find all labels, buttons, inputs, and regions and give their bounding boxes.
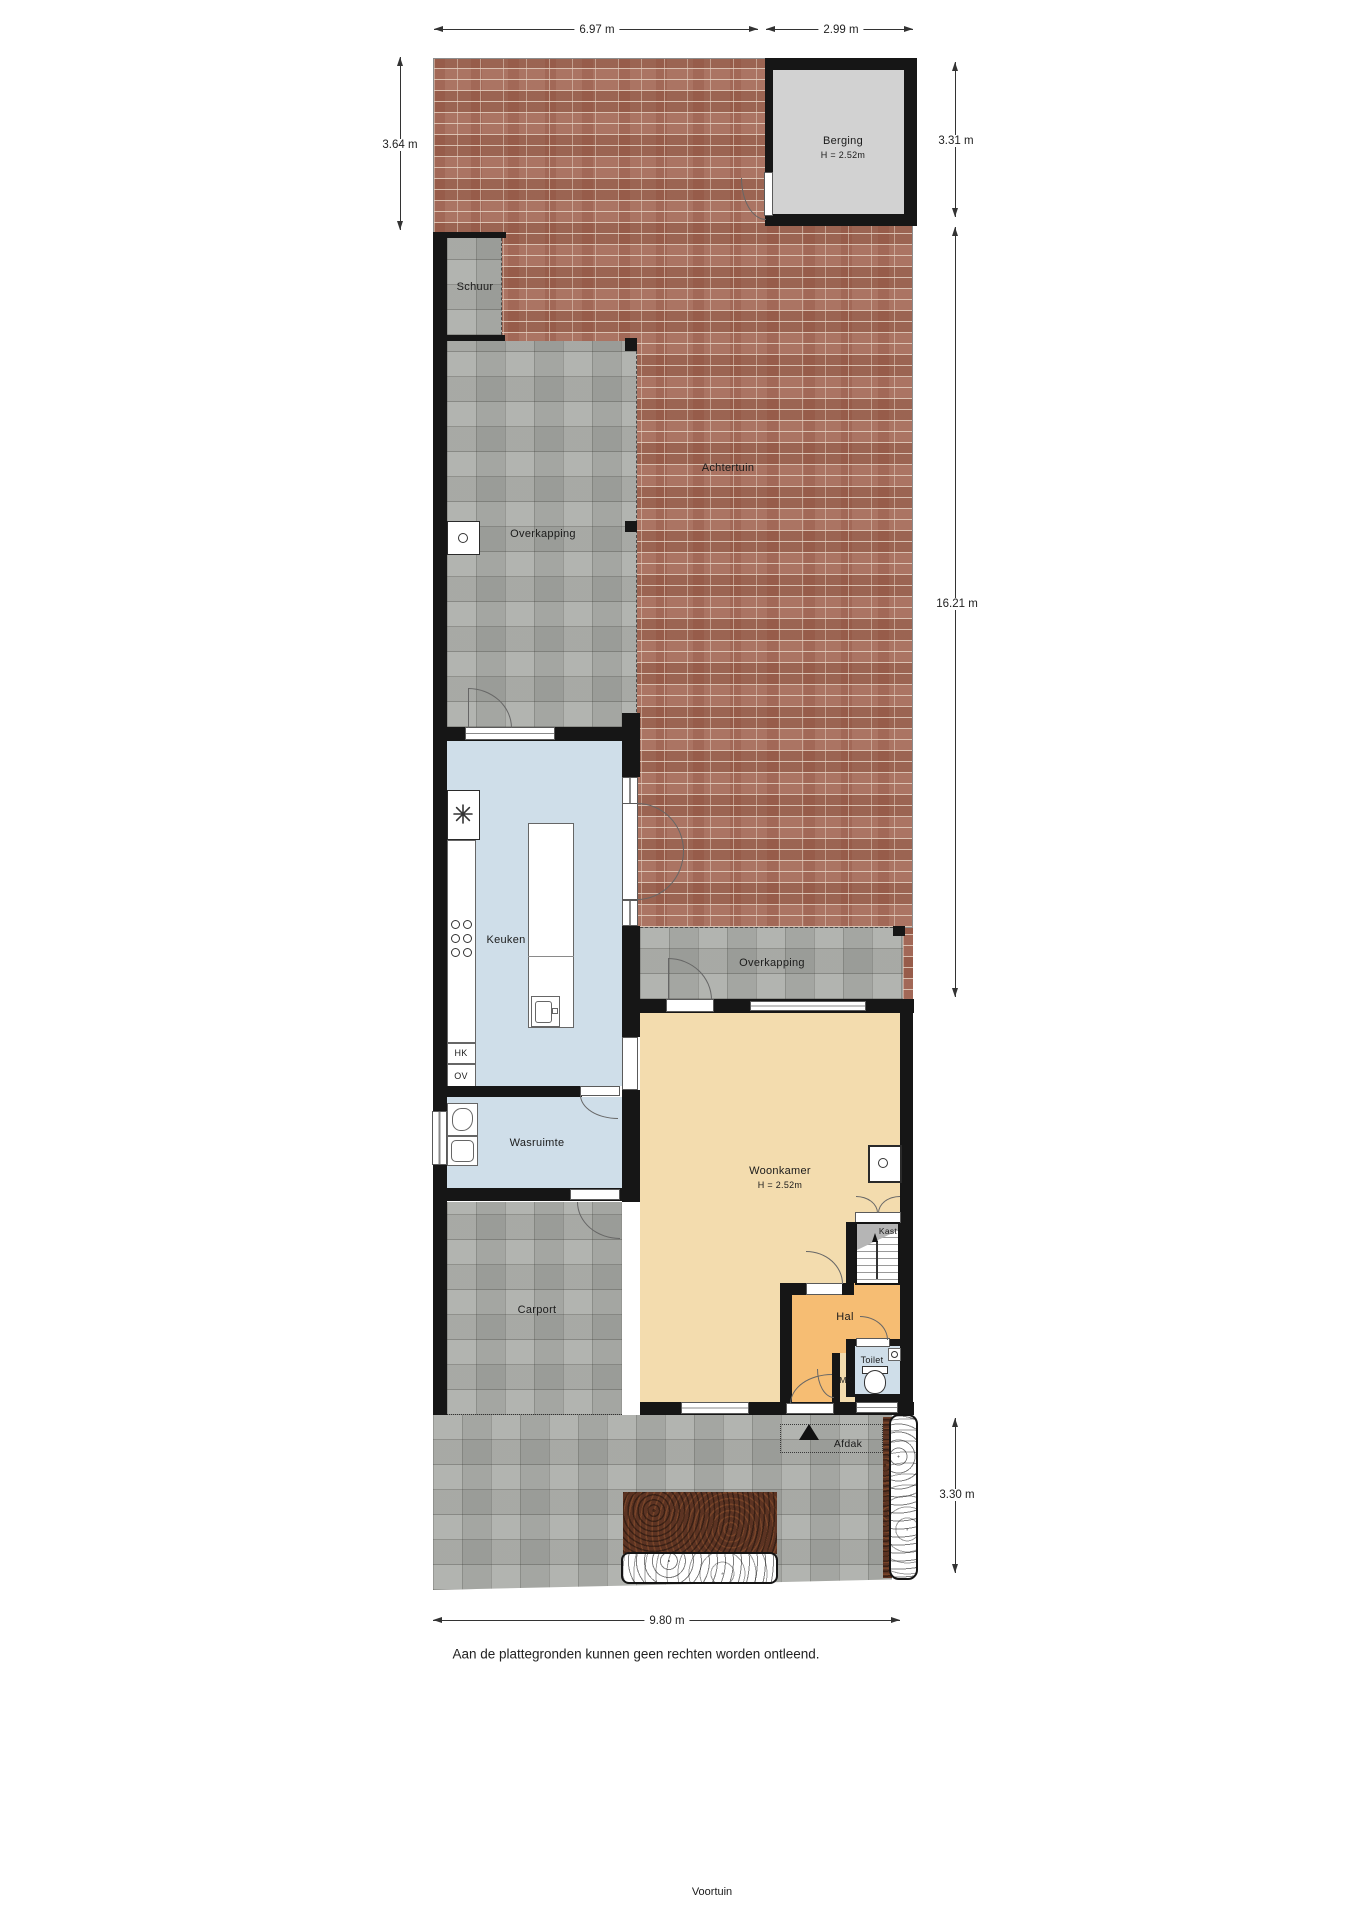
hob-burner xyxy=(451,948,460,957)
woonkamer-label: Woonkamer xyxy=(749,1165,811,1177)
dimension-arrow xyxy=(891,1617,900,1623)
carport-label: Carport xyxy=(518,1304,557,1316)
toilet-wall-left xyxy=(846,1339,855,1397)
hob-burner xyxy=(463,948,472,957)
woonkamer-tuindeur-leaf xyxy=(668,958,669,1000)
overkapping-lower-label: Overkapping xyxy=(739,957,805,969)
toilet-bowl xyxy=(864,1370,886,1394)
dimension-arrow xyxy=(749,26,758,32)
berging-height-label: H = 2.52m xyxy=(821,150,865,160)
keuken-window-right2 xyxy=(622,900,638,926)
dimension-arrow xyxy=(952,62,958,71)
schuur-dashed-edge xyxy=(501,238,502,335)
dimension-arrow xyxy=(952,988,958,997)
voortuin-caption: Voortuin xyxy=(692,1886,732,1898)
keuken-window-top xyxy=(465,727,555,740)
wall-keuken-wasruimte xyxy=(447,1086,582,1097)
ventilation-unit xyxy=(447,790,480,840)
hedge-right xyxy=(889,1414,918,1580)
stairs-direction-stem xyxy=(876,1241,878,1279)
keuken-door-leaf xyxy=(468,688,469,728)
wasruimte-carport-door xyxy=(570,1189,620,1200)
dimension-arrow xyxy=(952,1564,958,1573)
woonkamer-window-front xyxy=(681,1402,749,1414)
dim-label-berging-breedte: 2.99 m xyxy=(818,24,863,36)
toilet-label: Toilet xyxy=(861,1355,884,1365)
garden-bed xyxy=(623,1492,777,1554)
hob-burner xyxy=(451,934,460,943)
wasruimte-label: Wasruimte xyxy=(510,1137,565,1149)
woonkamer-wall-right xyxy=(900,999,913,1415)
woonkamer-window-top xyxy=(750,1001,866,1011)
stairs-wall-left xyxy=(846,1222,855,1283)
berging-wall-bottom xyxy=(765,214,917,226)
toilet-wall-bottom xyxy=(855,1394,902,1402)
fan-icon xyxy=(452,803,474,825)
dimension-arrow xyxy=(952,208,958,217)
island-sink-tap xyxy=(552,1008,558,1014)
dim-label-achtertuin-breedte: 6.97 m xyxy=(574,24,619,36)
boiler-unit-icon xyxy=(458,533,468,543)
dimension-arrow xyxy=(397,57,403,66)
dimension-arrow xyxy=(397,221,403,230)
dim-label-berging-diepte: 3.31 m xyxy=(933,135,978,147)
hal-door-frame xyxy=(806,1283,843,1295)
carport-dotted-edge xyxy=(447,1414,622,1415)
overkapping-lower-dashed-edge xyxy=(640,927,903,928)
mk-label: MK xyxy=(839,1375,852,1385)
wall-kitchen-right-c xyxy=(622,1090,640,1202)
woonkamer-height-label: H = 2.52m xyxy=(758,1180,802,1190)
wasruimte-window-left xyxy=(432,1111,447,1165)
dimension-arrow xyxy=(766,26,775,32)
dimension-arrow xyxy=(904,26,913,32)
woonkamer-tuindeur xyxy=(666,999,714,1012)
hal-wall-top-right xyxy=(842,1283,854,1295)
entrance-triangle xyxy=(799,1424,819,1440)
dim-label-achtertuin-diepte: 3.64 m xyxy=(377,139,422,151)
floorplan-canvas: Achtertuin Berging H = 2.52m Schuur Over… xyxy=(0,0,1358,1920)
berging-wall-right xyxy=(904,58,917,226)
wall-kitchen-right-a xyxy=(622,713,640,777)
dim-label-voortuin-diepte: 3.30 m xyxy=(934,1489,979,1501)
toilet-window-front xyxy=(856,1402,898,1413)
achtertuin-label: Achtertuin xyxy=(702,462,755,474)
tuindeuren-frame xyxy=(622,803,638,900)
island-sink-basin xyxy=(535,1001,552,1023)
disclaimer-text: Aan de plattegronden kunnen geen rechten… xyxy=(452,1647,819,1662)
fireplace-stove-icon xyxy=(878,1158,888,1168)
laundry-sink-basin xyxy=(452,1108,473,1131)
washing-machine-front xyxy=(451,1140,474,1162)
kast-label: Kast xyxy=(879,1226,897,1236)
berging-label: Berging xyxy=(823,135,863,147)
stairs-direction-arrow xyxy=(872,1233,878,1242)
dim-label-perceel-diepte: 16.21 m xyxy=(931,598,983,610)
hal-wall-left xyxy=(780,1283,792,1403)
ov-cabinet-label: OV xyxy=(454,1071,468,1081)
dim-label-perceel-breedte: 9.80 m xyxy=(644,1615,689,1627)
overkapping-post-right xyxy=(893,926,905,936)
dimension-arrow xyxy=(952,1418,958,1427)
hal-label: Hal xyxy=(836,1311,853,1323)
keuken-label: Keuken xyxy=(486,934,525,946)
hk-cabinet-label: HK xyxy=(454,1048,467,1058)
dimension-arrow xyxy=(433,1617,442,1623)
afdak-label: Afdak xyxy=(834,1438,862,1450)
kitchen-island-seam xyxy=(528,956,574,957)
wall-left-outer xyxy=(433,232,447,1417)
hob-burner xyxy=(463,934,472,943)
hob-burner xyxy=(451,920,460,929)
overkapping-post-mid xyxy=(625,521,637,532)
toilet-sink-basin xyxy=(891,1351,898,1358)
afdak-outline xyxy=(780,1424,883,1453)
dim-line-perceel-diepte xyxy=(955,227,956,997)
hob-burner xyxy=(463,920,472,929)
keuken-window-right xyxy=(622,777,638,805)
overkapping-post-top xyxy=(625,338,637,351)
overkapping-upper-dashed-edge xyxy=(636,341,637,727)
schuur-label: Schuur xyxy=(457,281,494,293)
achtertuin-brick-strip xyxy=(903,928,913,1001)
overkapping-upper-label: Overkapping xyxy=(510,528,576,540)
wall-kitchen-right-b xyxy=(622,926,640,1037)
dimension-arrow xyxy=(952,227,958,236)
berging-wall-top xyxy=(765,58,917,70)
hedge-bottom xyxy=(621,1552,778,1584)
keuken-woonkamer-doorway xyxy=(622,1037,638,1090)
dimension-arrow xyxy=(434,26,443,32)
front-door xyxy=(786,1403,834,1414)
